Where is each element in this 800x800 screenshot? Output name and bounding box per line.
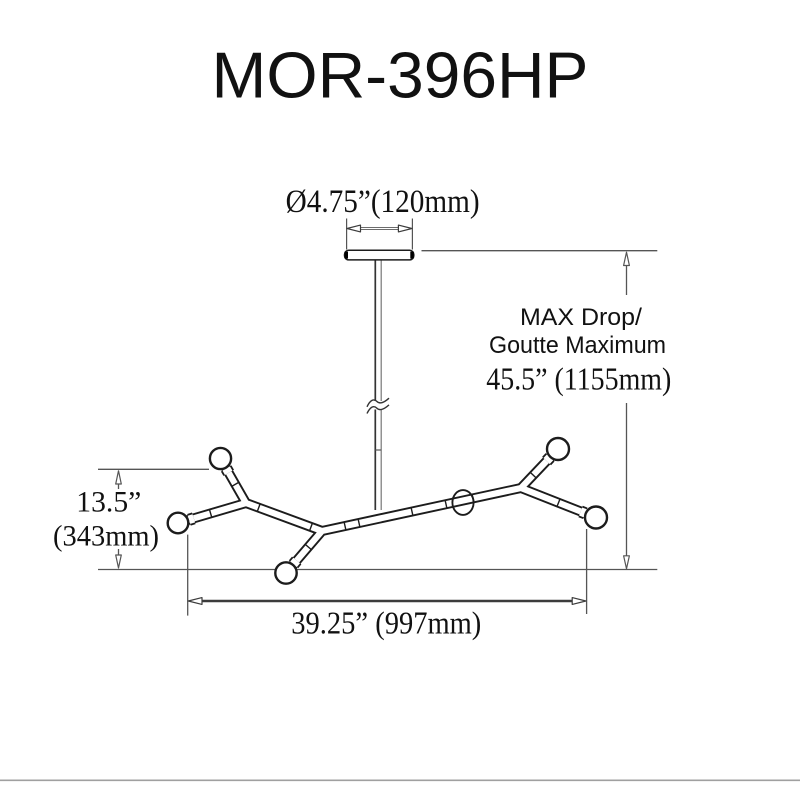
svg-text:13.5”: 13.5” <box>76 487 141 519</box>
svg-text:45.5” (1155mm): 45.5” (1155mm) <box>486 361 671 397</box>
svg-text:(343mm): (343mm) <box>53 521 159 553</box>
svg-text:Ø4.75”(120mm): Ø4.75”(120mm) <box>286 184 480 220</box>
svg-text:Goutte Maximum: Goutte Maximum <box>489 333 666 359</box>
svg-text:MAX Drop/: MAX Drop/ <box>520 305 642 331</box>
svg-text:39.25” (997mm): 39.25” (997mm) <box>291 605 481 641</box>
svg-text:MOR-396HP: MOR-396HP <box>212 39 589 112</box>
